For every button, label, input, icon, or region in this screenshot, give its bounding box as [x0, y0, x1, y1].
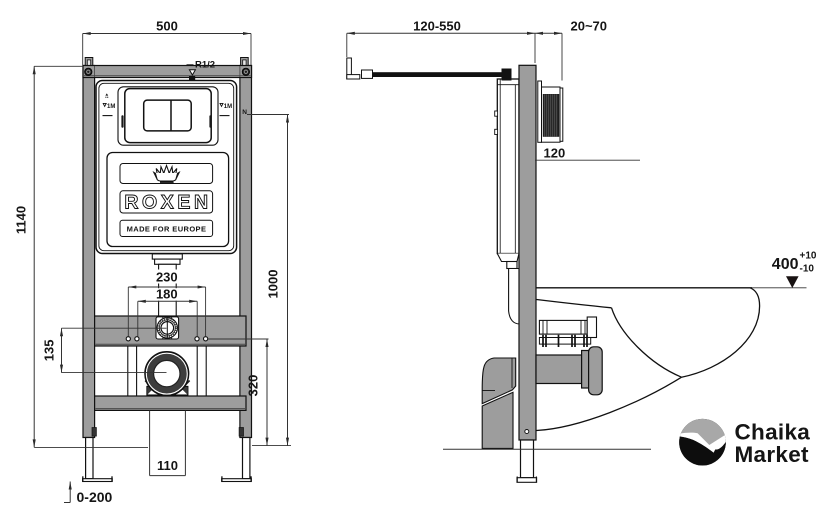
- svg-text:110: 110: [157, 458, 178, 473]
- svg-text:MADE FOR EUROPE: MADE FOR EUROPE: [127, 225, 207, 234]
- svg-text:1140: 1140: [13, 206, 28, 234]
- svg-text:230: 230: [156, 270, 178, 285]
- svg-text:ROXEN: ROXEN: [124, 192, 211, 214]
- svg-text:1000: 1000: [266, 270, 281, 299]
- svg-text:R1/2: R1/2: [195, 60, 215, 71]
- svg-text:500: 500: [156, 19, 178, 34]
- svg-text:-10: -10: [800, 264, 815, 275]
- svg-text:400: 400: [772, 256, 799, 273]
- svg-text:N: N: [242, 109, 247, 116]
- svg-text:20~70: 20~70: [571, 18, 608, 33]
- svg-text:120-550: 120-550: [413, 18, 461, 33]
- svg-text:135: 135: [42, 340, 57, 362]
- svg-text:180: 180: [156, 287, 178, 302]
- svg-text:1M: 1M: [224, 104, 232, 110]
- svg-text:0-200: 0-200: [77, 489, 113, 505]
- svg-text:1M: 1M: [107, 104, 115, 110]
- svg-text:+10: +10: [800, 250, 817, 261]
- svg-text:Chaika: Chaika: [735, 420, 811, 445]
- svg-text:Market: Market: [735, 442, 810, 467]
- svg-text:320: 320: [246, 375, 261, 397]
- svg-text:120: 120: [544, 146, 566, 161]
